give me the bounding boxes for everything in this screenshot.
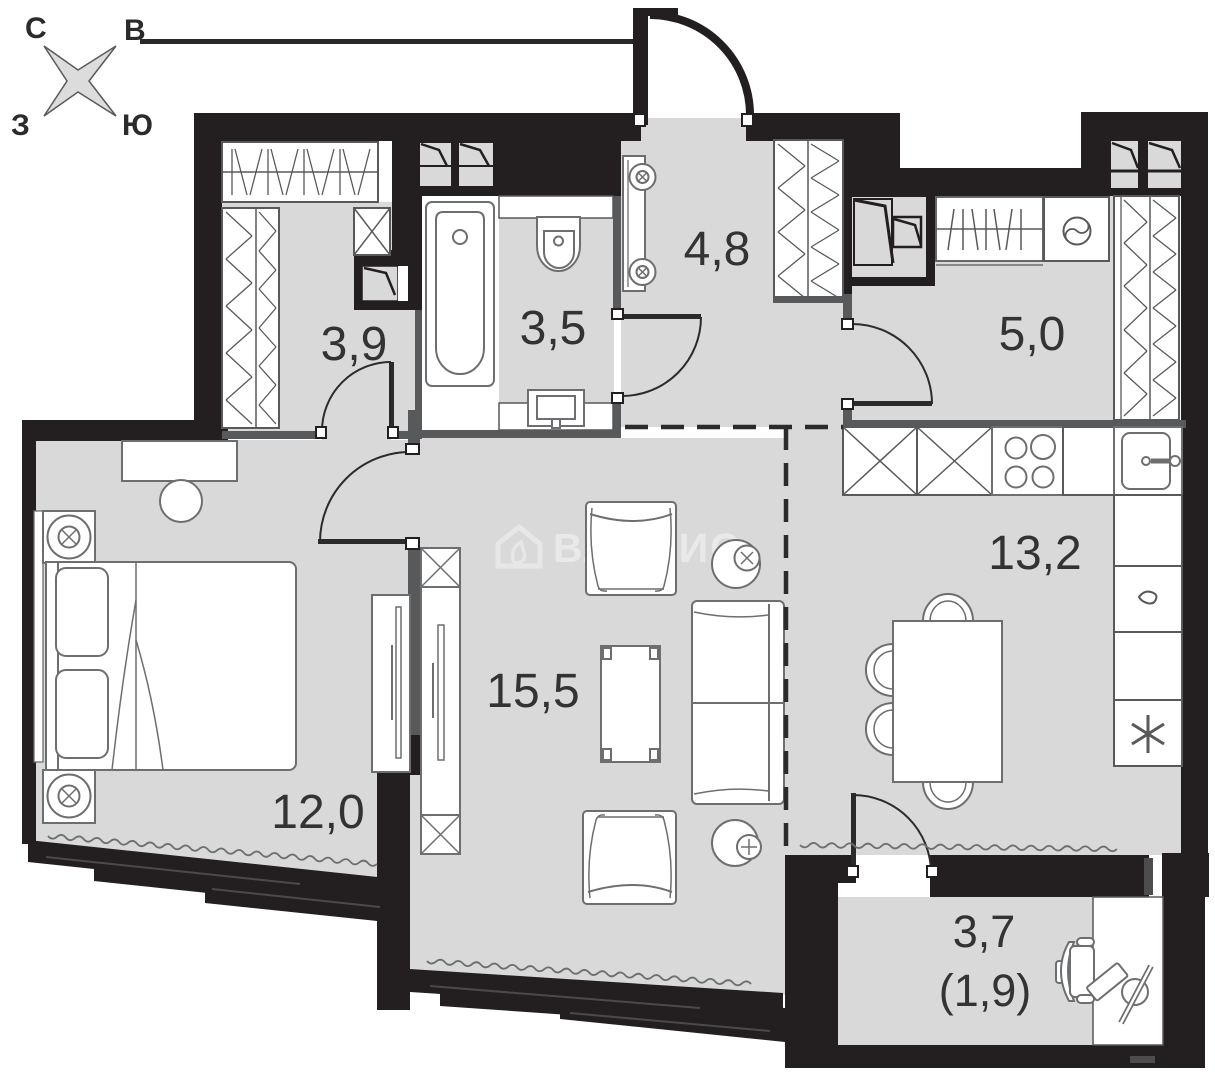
- svg-text:5,0: 5,0: [999, 308, 1066, 361]
- svg-text:(1,9): (1,9): [939, 965, 1032, 1016]
- svg-text:3,9: 3,9: [321, 318, 388, 371]
- svg-text:13,2: 13,2: [988, 527, 1081, 580]
- svg-text:З: З: [11, 109, 30, 142]
- svg-text:4,8: 4,8: [684, 223, 751, 276]
- svg-text:12,0: 12,0: [271, 786, 364, 839]
- svg-text:Ю: Ю: [122, 109, 153, 142]
- svg-text:3,7: 3,7: [953, 906, 1016, 957]
- svg-text:3,5: 3,5: [520, 302, 587, 355]
- svg-text:15,5: 15,5: [486, 665, 579, 718]
- svg-text:С: С: [25, 12, 47, 45]
